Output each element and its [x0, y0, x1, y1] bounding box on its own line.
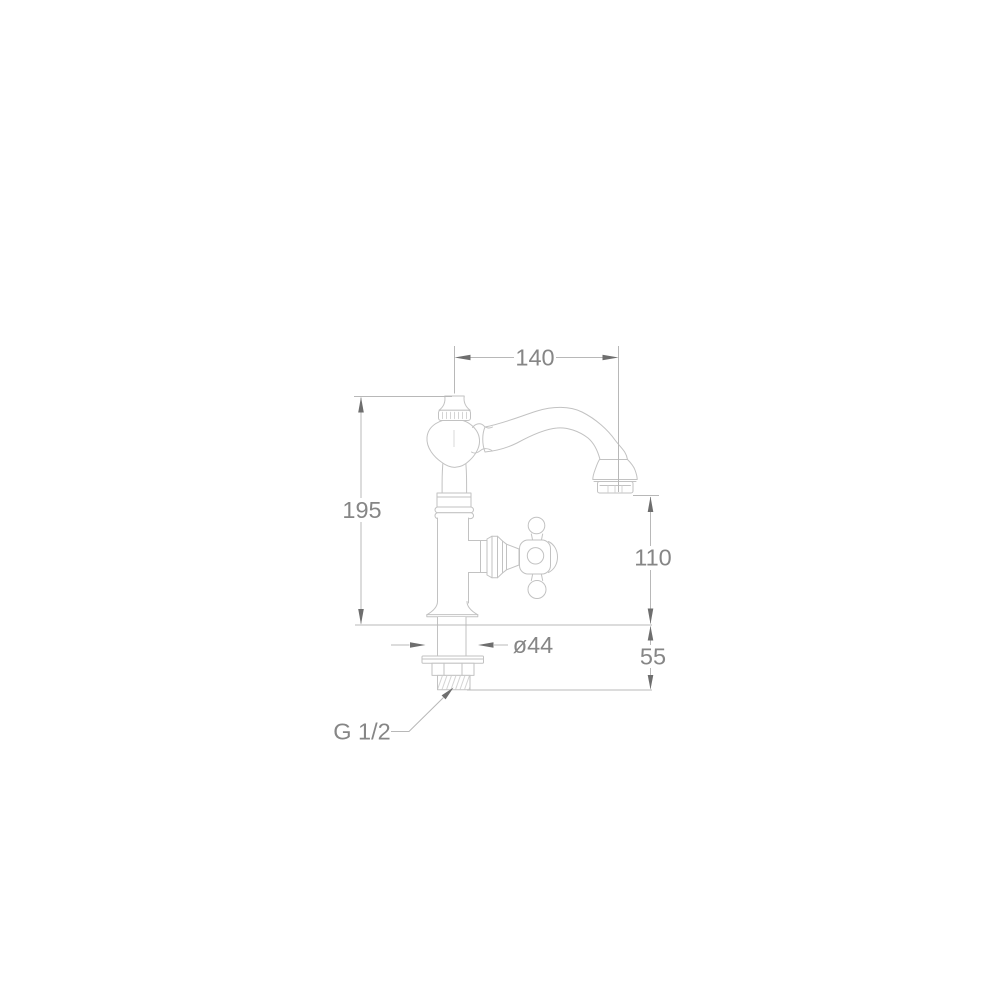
- washer: [422, 656, 484, 663]
- leader-line: [391, 698, 444, 732]
- collar-cup: [437, 493, 471, 507]
- dimension-under-deck: 55: [467, 626, 666, 690]
- dim-overall-height-label: 195: [342, 497, 381, 523]
- dimension-outlet-height: 110: [633, 496, 672, 625]
- faucet-body: [427, 419, 480, 467]
- arrowhead: [603, 355, 619, 361]
- hex-locknut: [432, 663, 474, 675]
- arrowhead: [648, 675, 654, 690]
- arrowhead: [478, 642, 494, 648]
- shank-fill: [438, 617, 467, 656]
- dimension-base-diameter: ø44: [391, 632, 553, 658]
- arrowhead: [358, 397, 364, 413]
- dim-outlet-height-label: 110: [634, 545, 671, 571]
- arrowhead: [648, 609, 654, 625]
- column-fill: [438, 518, 469, 604]
- technical-drawing-svg: 140 195 110 55: [0, 0, 1000, 1000]
- drawing-canvas: 140 195 110 55: [0, 0, 1000, 1000]
- handle-bonnet: [487, 536, 507, 578]
- spout-outlet-bell: [593, 460, 637, 480]
- arrowhead: [648, 497, 654, 513]
- handle-assembly: [469, 517, 558, 598]
- arrowhead: [358, 609, 364, 625]
- inlet-thread-label: G 1/2: [333, 719, 390, 745]
- handle-bottom-neck: [531, 575, 542, 581]
- arrowhead: [648, 626, 654, 641]
- handle-bottom-ball: [528, 581, 546, 599]
- dim-base-diameter-label: ø44: [513, 632, 554, 658]
- handle-top-neck: [531, 534, 542, 540]
- handle-cone: [507, 544, 520, 570]
- dim-under-deck-label: 55: [640, 644, 666, 670]
- label-inlet-thread: G 1/2: [333, 688, 453, 745]
- dim-spout-reach-label: 140: [515, 345, 554, 371]
- collar-ring: [435, 507, 474, 513]
- spout-path: [483, 407, 628, 459]
- arrowhead: [410, 642, 426, 648]
- handle-top-ball: [528, 517, 545, 534]
- handle-hub: [520, 540, 551, 574]
- arrowhead: [455, 355, 471, 361]
- top-finial: [439, 396, 470, 410]
- ring-nut-knurling: [443, 412, 467, 418]
